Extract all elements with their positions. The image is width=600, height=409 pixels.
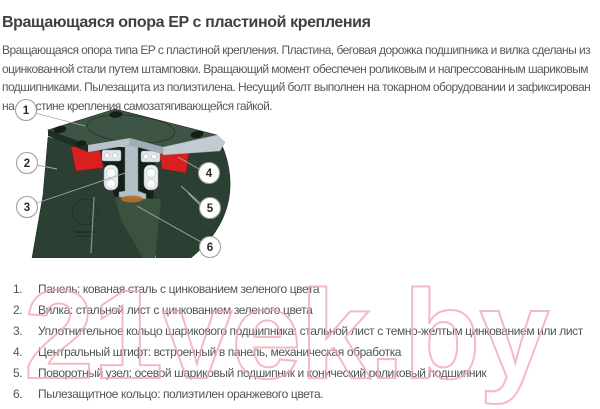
svg-text:5: 5	[207, 203, 214, 215]
item-number: 4.	[13, 346, 22, 358]
svg-text:3: 3	[24, 202, 30, 214]
callout-2: 2	[17, 153, 38, 174]
roller	[147, 180, 156, 189]
bearing-ball	[112, 153, 117, 158]
list-item: 1. Панель: кованая сталь с цинкованием з…	[0, 283, 600, 295]
roller	[107, 169, 116, 178]
item-number: 5.	[13, 367, 22, 379]
caster-diagram: 1 2 3 4 5 6	[5, 95, 265, 258]
bearing-ball	[104, 153, 109, 158]
callout-6: 6	[200, 237, 221, 258]
list-item: 4. Центральный штифт: встроенный в панел…	[0, 346, 600, 358]
item-text: Вилка: стальной лист с цинкованием зелен…	[38, 303, 312, 317]
embossed-marking	[77, 235, 93, 237]
item-text: Пылезащитное кольцо: полиэтилен оранжево…	[38, 387, 323, 401]
item-number: 6.	[13, 388, 22, 400]
item-text: Центральный штифт: встроенный в панель, …	[38, 345, 401, 359]
parts-list: 1. Панель: кованая сталь с цинкованием з…	[0, 283, 600, 409]
caster-cutaway-illustration: 1 2 3 4 5 6	[5, 95, 265, 258]
page-title: Вращающаяся опора EP с пластиной креплен…	[2, 14, 598, 32]
svg-text:4: 4	[206, 168, 213, 180]
bearing-ball	[143, 154, 148, 159]
item-text: Поворотный узел: осевой шариковый подшип…	[38, 366, 486, 380]
item-text: Уплотнительное кольцо шарикового подшипн…	[38, 324, 583, 338]
callout-3: 3	[17, 197, 38, 218]
list-item: 2. Вилка: стальной лист с цинкованием зе…	[0, 304, 600, 316]
item-number: 1.	[13, 283, 22, 295]
item-number: 3.	[13, 325, 22, 337]
callout-5: 5	[200, 198, 221, 219]
svg-text:1: 1	[23, 105, 30, 117]
svg-text:2: 2	[24, 158, 30, 170]
dust-ring	[121, 196, 143, 203]
callout-4: 4	[199, 163, 220, 184]
callout-1: 1	[16, 100, 37, 121]
item-text: Панель: кованая сталь с цинкованием зеле…	[38, 282, 319, 296]
list-item: 6. Пылезащитное кольцо: полиэтилен оранж…	[0, 388, 600, 400]
bearing-ball	[151, 154, 156, 159]
list-item: 5. Поворотный узел: осевой шариковый под…	[0, 367, 600, 379]
roller	[147, 169, 156, 178]
list-item: 3. Уплотнительное кольцо шарикового подш…	[0, 325, 600, 337]
roller	[107, 180, 116, 189]
svg-text:6: 6	[207, 242, 213, 254]
item-number: 2.	[13, 304, 22, 316]
